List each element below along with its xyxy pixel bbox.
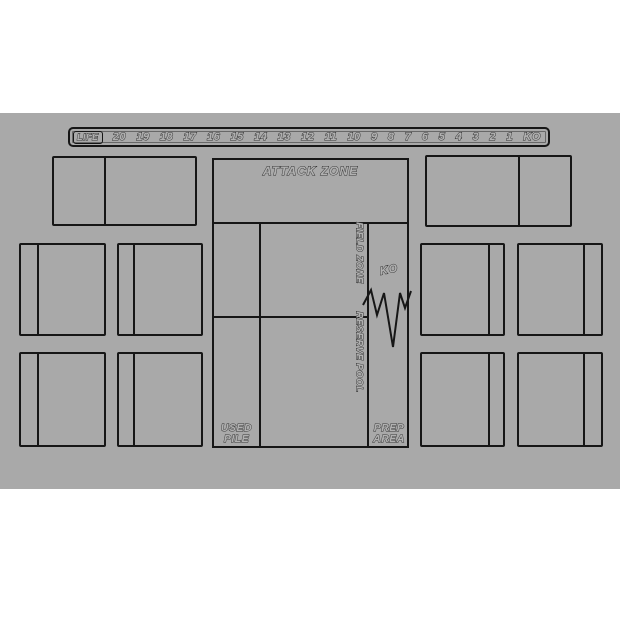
life-value[interactable]: 9 [371,131,378,143]
life-value[interactable]: 3 [473,131,480,143]
life-value[interactable]: 16 [207,131,220,143]
life-value[interactable]: 20 [113,131,126,143]
zone-divider [488,245,490,334]
card-zone-right-4[interactable] [517,352,603,447]
life-value[interactable]: 7 [405,131,412,143]
prep-area[interactable]: PREP AREA [367,305,411,450]
life-value[interactable]: 4 [456,131,463,143]
life-label: LIFE [73,131,103,144]
zone-divider [583,354,585,445]
life-track[interactable]: LIFE 2019181716151413121110987654321KO [68,127,550,147]
center-board: ATTACK ZONE FIELD ZONE RESERVE POOL KO U… [212,158,409,448]
life-value[interactable]: 13 [278,131,291,143]
attack-zone[interactable]: ATTACK ZONE [214,160,407,222]
card-zone-right-2[interactable] [517,243,603,336]
zone-divider [583,245,585,334]
life-value[interactable]: 11 [325,131,337,143]
card-zone-left-3[interactable] [19,352,106,447]
zone-divider [37,245,39,334]
reserve-pool[interactable] [259,316,367,450]
used-pile-label: USED PILE [214,423,259,445]
field-zone[interactable] [259,222,367,316]
playmat: LIFE 2019181716151413121110987654321KO A… [0,113,620,489]
zone-divider [518,157,520,225]
life-value[interactable]: 5 [439,131,446,143]
card-zone-left-2[interactable] [117,243,203,336]
life-value[interactable]: 8 [388,131,395,143]
zone-divider [488,354,490,445]
card-zone-right-1[interactable] [420,243,505,336]
life-value[interactable]: 17 [183,131,196,143]
life-value[interactable]: 10 [347,131,360,143]
life-value[interactable]: 19 [136,131,149,143]
card-zone-top-right[interactable] [425,155,572,227]
life-value[interactable]: 18 [160,131,173,143]
life-value[interactable]: 1 [506,131,513,143]
zone-divider [133,354,135,445]
card-zone-right-3[interactable] [420,352,505,447]
zone-divider [104,158,106,224]
card-zone-left-1[interactable] [19,243,106,336]
life-value[interactable]: 2 [489,131,496,143]
life-value[interactable]: 15 [231,131,244,143]
ko-zone-label: KO [379,262,400,278]
life-value[interactable]: KO [523,131,541,143]
life-value[interactable]: 14 [254,131,267,143]
prep-area-label: PREP AREA [367,423,411,445]
used-pile[interactable]: USED PILE [214,316,259,450]
card-zone-left-4[interactable] [117,352,203,447]
zone-divider [37,354,39,445]
field-zone-label: FIELD ZONE [354,222,365,283]
zone-divider [133,245,135,334]
attack-zone-label: ATTACK ZONE [214,164,407,178]
life-value[interactable]: 6 [422,131,429,143]
life-value[interactable]: 12 [301,131,314,143]
card-zone-top-left[interactable] [52,156,197,226]
